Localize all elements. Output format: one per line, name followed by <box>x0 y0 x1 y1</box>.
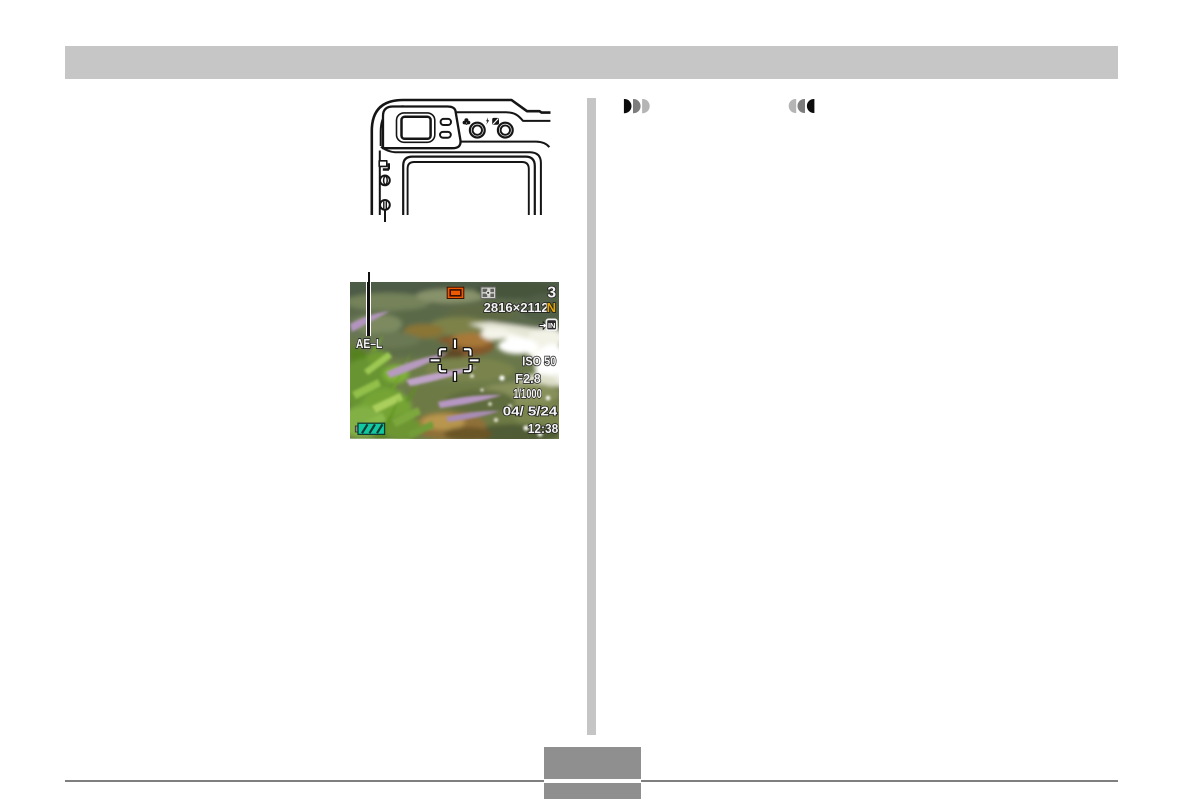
svg-text:12:38: 12:38 <box>528 421 558 436</box>
svg-text:2816×2112: 2816×2112 <box>483 300 548 315</box>
svg-text:IN: IN <box>548 321 556 330</box>
svg-text:04/ 5/24: 04/ 5/24 <box>503 403 558 418</box>
svg-text:F2.8: F2.8 <box>515 371 540 386</box>
svg-text:AE–L: AE–L <box>356 336 383 351</box>
svg-text:N: N <box>546 300 555 315</box>
svg-text:ISO 50: ISO 50 <box>522 353 556 368</box>
svg-text:1/1000: 1/1000 <box>513 386 541 401</box>
